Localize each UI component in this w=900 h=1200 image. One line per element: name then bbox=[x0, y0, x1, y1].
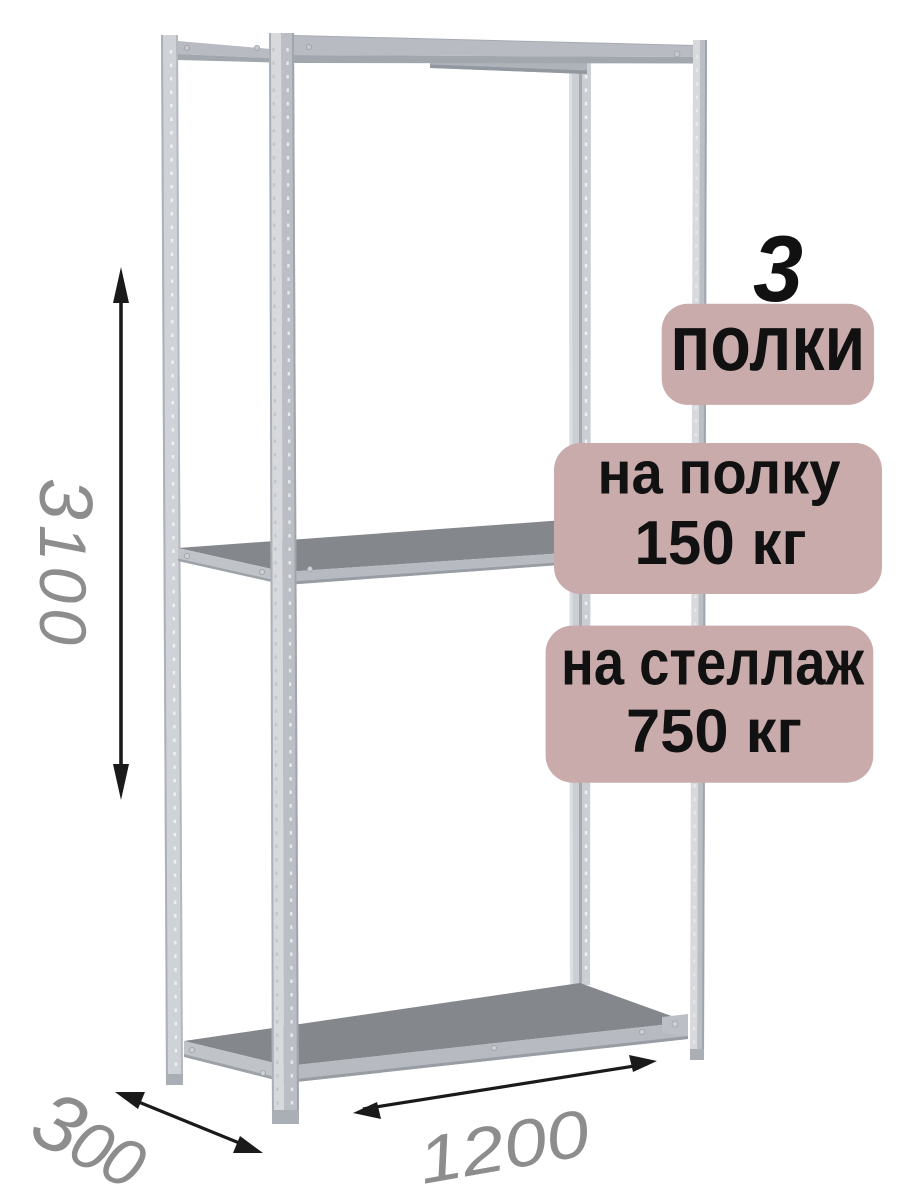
svg-text:750 кг: 750 кг bbox=[626, 697, 802, 765]
svg-text:на полку: на полку bbox=[598, 440, 842, 507]
svg-text:на стеллаж: на стеллаж bbox=[561, 627, 865, 699]
svg-text:3100: 3100 bbox=[24, 478, 108, 650]
svg-text:150 кг: 150 кг bbox=[635, 509, 807, 578]
svg-text:полки: полки bbox=[670, 298, 865, 387]
